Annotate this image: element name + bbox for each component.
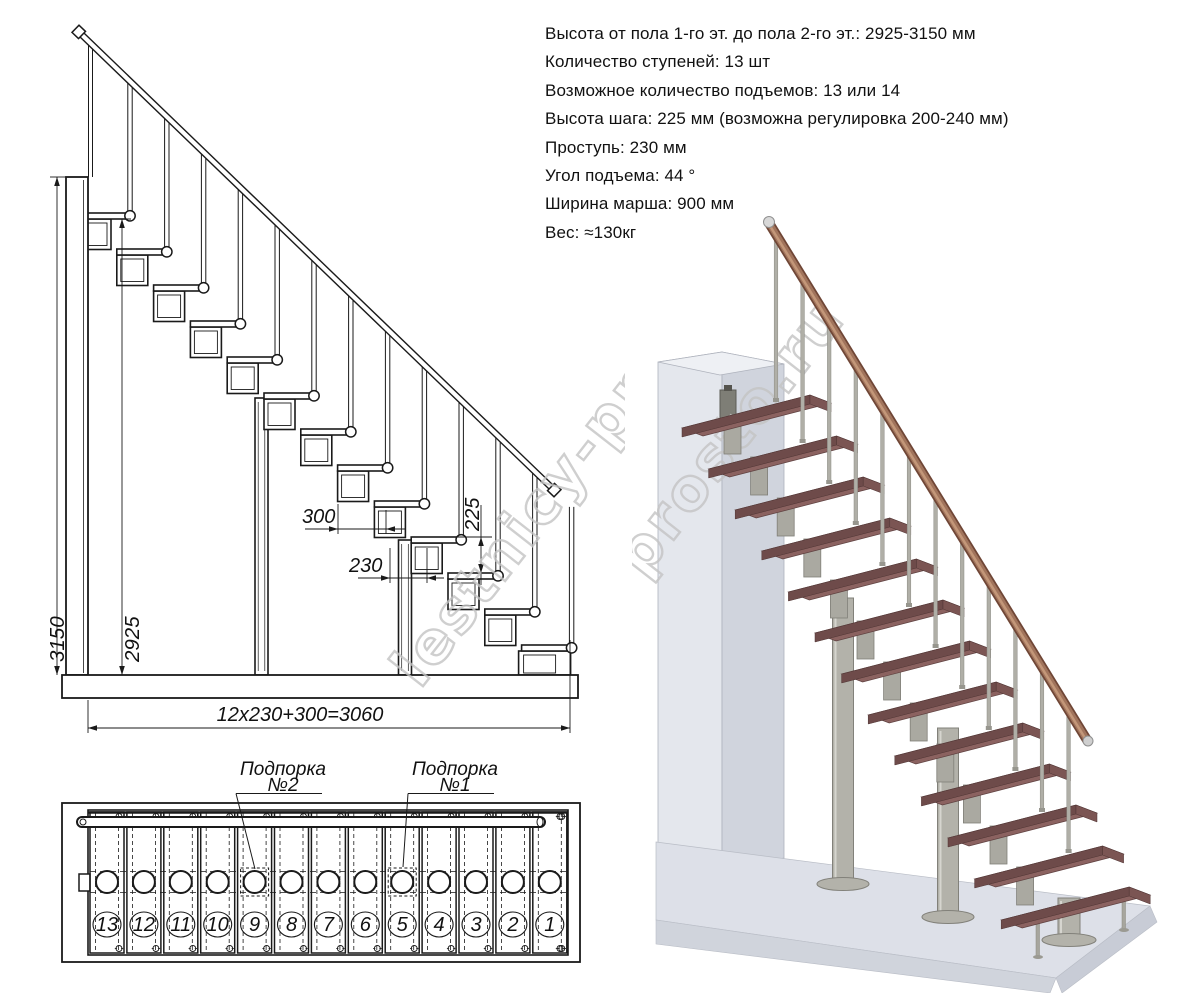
- baluster-collar: [906, 603, 912, 607]
- baluster-collar: [773, 398, 779, 402]
- tread-collar: [162, 247, 172, 257]
- step-number: 13: [96, 914, 118, 936]
- connector-node: [133, 871, 155, 893]
- wall: [66, 177, 88, 675]
- plan-drawing: 13121110987654321Подпорка№2Подпорка№1: [62, 759, 580, 962]
- tread-collar: [419, 499, 429, 509]
- step-module: [264, 399, 295, 430]
- step-number: 1: [544, 914, 555, 936]
- dim-arrow: [119, 219, 125, 228]
- dim-arrow: [561, 725, 570, 731]
- tread-collar: [530, 607, 540, 617]
- screenshot-root: Высота от пола 1-го эт. до пола 2-го эт.…: [0, 0, 1191, 993]
- connector-node: [244, 871, 266, 893]
- plan-handrail: [77, 817, 545, 827]
- step-module: [301, 435, 332, 466]
- leg-foot: [1033, 955, 1043, 959]
- tread-side: [1076, 805, 1097, 822]
- step-number: 8: [286, 914, 297, 936]
- baluster-collar: [800, 439, 806, 443]
- dim-total-length: 12x230+300=3060: [217, 704, 384, 726]
- tread: [117, 249, 165, 255]
- baluster-collar: [959, 685, 965, 689]
- step-number: 6: [360, 914, 372, 936]
- baluster-collar: [853, 521, 859, 525]
- tread-collar: [566, 643, 576, 653]
- tread: [522, 645, 570, 651]
- connector-node: [465, 871, 487, 893]
- baluster: [774, 234, 778, 401]
- step-module: [374, 507, 405, 538]
- connector-node: [317, 871, 339, 893]
- baluster: [907, 451, 911, 606]
- step-number: 7: [323, 914, 335, 936]
- step-number: 12: [133, 914, 155, 936]
- tread-collar: [272, 355, 282, 365]
- step-module: [338, 471, 369, 502]
- rail-anchor: [79, 874, 90, 891]
- tread-collar: [235, 319, 245, 329]
- dim-arrow: [88, 725, 97, 731]
- dim-arrow: [119, 666, 125, 675]
- column-base-plate: [817, 878, 869, 891]
- connector-node: [539, 871, 561, 893]
- step-number: 5: [397, 914, 409, 936]
- tread-collar: [346, 427, 356, 437]
- step-module: [154, 291, 185, 322]
- tread: [190, 321, 238, 327]
- baluster: [1014, 624, 1018, 770]
- connector-node: [96, 871, 118, 893]
- step-number: 9: [249, 914, 260, 936]
- leg-foot: [1119, 928, 1129, 932]
- tread: [264, 393, 312, 399]
- step-number: 10: [207, 914, 229, 936]
- step-number: 4: [434, 914, 445, 936]
- step-module: [190, 327, 221, 358]
- connector-node: [428, 871, 450, 893]
- thin-leg: [1036, 920, 1040, 956]
- callout-label: №2: [267, 775, 299, 796]
- connector-node: [391, 871, 413, 893]
- column-base-plate: [922, 911, 974, 924]
- tread: [374, 501, 422, 507]
- step-number: 3: [470, 914, 481, 936]
- drawing-scene: 3150292530023022512x230+300=3060lestnicy…: [0, 0, 1191, 993]
- handrail-end-cap: [1083, 736, 1093, 746]
- tread-side: [1103, 846, 1124, 863]
- baluster-collar: [879, 562, 885, 566]
- baluster-collar: [933, 644, 939, 648]
- baluster: [987, 580, 991, 729]
- baluster: [854, 364, 858, 524]
- connector-node: [207, 871, 229, 893]
- baluster-collar: [1066, 849, 1072, 853]
- tread: [227, 357, 275, 363]
- tread-collar: [309, 391, 319, 401]
- dim-flight-height: 2925: [121, 616, 144, 663]
- tread-collar: [198, 283, 208, 293]
- baluster-collar: [1012, 767, 1018, 771]
- dim-module-pitch: 300: [302, 506, 335, 528]
- callout-label: №1: [439, 775, 470, 796]
- connector-node: [281, 871, 303, 893]
- connector-node: [354, 871, 376, 893]
- baluster: [801, 278, 805, 442]
- tread: [301, 429, 349, 435]
- baluster-collar: [1039, 808, 1045, 812]
- column-base-plate: [1042, 934, 1096, 947]
- dim-arrow: [54, 666, 60, 675]
- support-post: [255, 398, 268, 675]
- dim-arrow: [427, 575, 436, 581]
- tread-collar: [382, 463, 392, 473]
- handrail-core: [82, 35, 551, 487]
- step-number: 11: [170, 914, 191, 936]
- dim-going: 230: [348, 555, 382, 577]
- dim-total-height: 3150: [46, 616, 69, 662]
- baluster: [934, 494, 938, 647]
- baluster: [881, 407, 885, 565]
- tread: [154, 285, 202, 291]
- baluster: [827, 321, 831, 483]
- tread: [338, 465, 386, 471]
- step-number: 2: [506, 914, 518, 936]
- tread-side: [1129, 887, 1150, 904]
- baluster: [1067, 710, 1071, 852]
- baluster: [1040, 667, 1044, 811]
- baluster: [960, 537, 964, 688]
- connector-node: [170, 871, 192, 893]
- baluster-collar: [986, 726, 992, 730]
- dim-arrow: [54, 177, 60, 186]
- baluster-collar: [826, 480, 832, 484]
- connector-node: [502, 871, 524, 893]
- floor-base: [62, 675, 578, 698]
- tread: [411, 537, 459, 543]
- step-module: [117, 255, 148, 286]
- step-module: [227, 363, 258, 394]
- handrail-top-cap: [764, 217, 775, 228]
